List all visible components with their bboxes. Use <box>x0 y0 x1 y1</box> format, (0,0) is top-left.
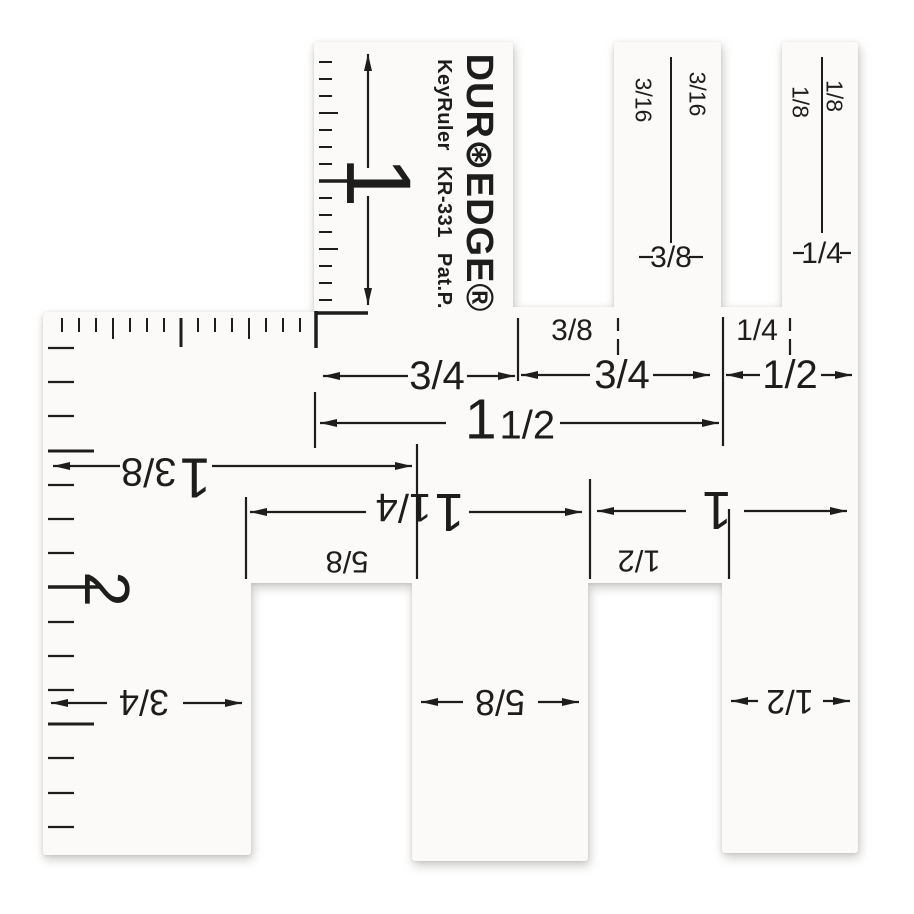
dim-top-seg3: 1/2 <box>762 355 818 395</box>
dim-width-1-2: 1/2 <box>617 546 660 577</box>
dim-top-seg2: 3/4 <box>594 355 650 395</box>
dim-1-1-4-whole: 1 <box>434 485 464 539</box>
dim-overall-1-1-2: 1 1/2 <box>465 392 555 449</box>
dim-top-notch2: 1/4 <box>736 316 778 346</box>
dim-width-5-8: 5/8 <box>325 547 368 578</box>
dim-bottom-left: 3/4 <box>119 684 169 720</box>
dim-overall-frac: 1/2 <box>500 406 556 446</box>
dim-bottom-right: 1/2 <box>766 684 813 718</box>
tab-scale-1-inch-mark: 1 <box>332 156 424 207</box>
keyruler-product-photo: DUR⊛EDGE® KeyRuler KR-331 Pat.P. 1 2 3/1… <box>0 0 914 914</box>
model-text: KeyRuler KR-331 Pat.P. <box>434 59 454 309</box>
dim-1-1-4: 1 1/4 <box>376 485 465 539</box>
dim-1-3-8-frac: 3/8 <box>121 452 177 492</box>
slot-b-width-label: 1/4 <box>801 239 843 269</box>
printed-labels: DUR⊛EDGE® KeyRuler KR-331 Pat.P. 1 2 3/1… <box>0 0 914 914</box>
body-scale-2-inch-mark: 2 <box>75 571 139 607</box>
brand-logo-text: DUR⊛EDGE® <box>460 54 498 313</box>
slot-b-right-label: 1/8 <box>823 80 846 112</box>
slot-b-left-label: 1/8 <box>789 86 812 118</box>
dim-top-notch1: 3/8 <box>551 316 593 346</box>
slot-a-left-label: 3/16 <box>632 78 655 123</box>
dim-1-1-4-frac: 1/4 <box>376 487 432 527</box>
dim-1: 1 <box>702 483 732 537</box>
dim-top-seg1: 3/4 <box>409 356 465 396</box>
dim-overall-whole: 1 <box>465 392 497 449</box>
slot-a-width-label: 3/8 <box>650 243 692 273</box>
dim-1-3-8: 1 3/8 <box>121 449 211 506</box>
dim-bottom-middle: 5/8 <box>475 684 525 720</box>
slot-a-right-label: 3/16 <box>686 72 709 117</box>
dim-1-3-8-whole: 1 <box>179 449 211 506</box>
